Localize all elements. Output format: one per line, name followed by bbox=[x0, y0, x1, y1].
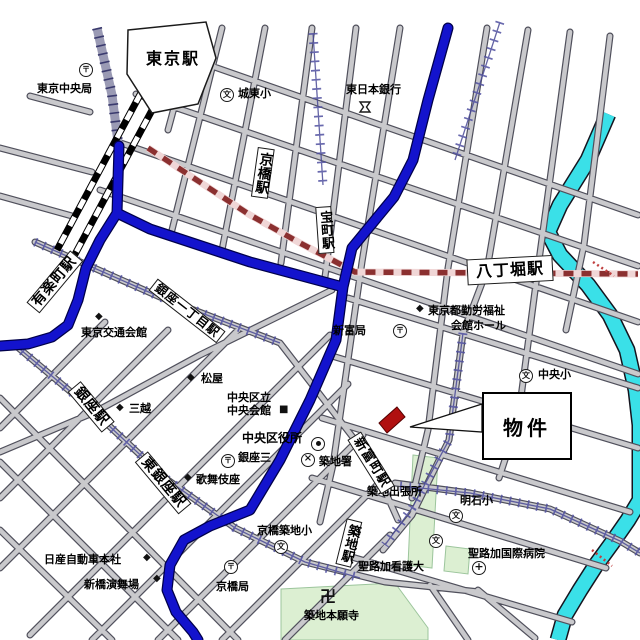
post-office-icon: 〒 bbox=[224, 560, 238, 574]
label-kinro-fukushi-line1: 東京都勤労福祉 bbox=[428, 305, 505, 317]
post-office-icon: 〒 bbox=[393, 324, 407, 338]
label-honganji: 築地本願寺 bbox=[304, 610, 359, 622]
label-chuo-kuritsu: 中央区立 bbox=[227, 392, 271, 404]
label-kabukiza: 歌舞伎座 bbox=[196, 474, 240, 486]
label-st-luke-college: 聖路加看護大 bbox=[358, 561, 424, 573]
diamond-marker: ◆ bbox=[95, 312, 103, 322]
label-chuo-kaikan: 中央会館 bbox=[227, 405, 271, 417]
label-enbujo: 新橋演舞場 bbox=[84, 579, 139, 591]
label-kyobashi-post: 京橋局 bbox=[216, 581, 249, 593]
label-shintomi-post: 新富局 bbox=[333, 325, 366, 337]
label-chuo-ward-office: 中央区役所 bbox=[242, 432, 302, 445]
bank-icon bbox=[358, 100, 372, 114]
tokyo-area-map: 東京駅 有楽町駅 京橋駅 宝町駅 八丁堀駅 銀座一丁目駅 銀座駅 東銀座駅 新富… bbox=[0, 0, 640, 640]
label-tsukiji-branch: 築地出張所 bbox=[367, 486, 422, 498]
label-mitsukoshi: 三越 bbox=[129, 403, 151, 415]
label-akashi-elem: 明石小 bbox=[460, 495, 493, 507]
temple-icon: 卍 bbox=[320, 589, 336, 605]
square-marker: ■ bbox=[279, 405, 288, 415]
label-st-luke-hospital: 聖路加国際病院 bbox=[468, 548, 545, 560]
label-kotsu-kaikan: 東京交通会館 bbox=[81, 327, 147, 339]
government-office-icon bbox=[311, 437, 325, 451]
school-icon: 文 bbox=[220, 88, 234, 102]
station-label-tokyo: 東京駅 bbox=[143, 50, 203, 68]
school-icon: 文 bbox=[519, 369, 533, 383]
label-joto-elem: 城東小 bbox=[238, 88, 271, 100]
hospital-icon: + bbox=[472, 561, 486, 575]
label-tsukiji-police: 築地署 bbox=[319, 456, 352, 468]
property-callout bbox=[410, 404, 482, 432]
label-kinro-fukushi-line2: 会館ホール bbox=[451, 320, 506, 332]
label-kyobashi-tsukiji-elem: 京橋築地小 bbox=[257, 525, 312, 537]
school-icon: 文 bbox=[449, 509, 463, 523]
post-office-icon: 〒 bbox=[79, 63, 93, 77]
diamond-marker: ◆ bbox=[116, 403, 124, 413]
label-chuo-elem: 中央小 bbox=[538, 369, 571, 381]
station-label-takaracho: 宝町駅 bbox=[315, 206, 335, 254]
post-office-icon: 〒 bbox=[221, 454, 235, 468]
label-tokyo-chuo-post: 東京中央局 bbox=[37, 83, 92, 95]
school-icon: 文 bbox=[429, 534, 443, 548]
diamond-marker: ◆ bbox=[153, 574, 161, 584]
property-marker bbox=[379, 407, 405, 433]
diamond-marker: ◆ bbox=[184, 473, 192, 483]
label-nissan-hq: 日産自動車本社 bbox=[44, 554, 121, 566]
label-ginza-san: 銀座三 bbox=[238, 452, 271, 464]
police-station-icon: × bbox=[301, 453, 315, 467]
property-box: 物件 bbox=[482, 392, 572, 460]
school-icon: 文 bbox=[274, 540, 288, 554]
label-matsuya: 松屋 bbox=[201, 373, 223, 385]
diamond-marker: ◆ bbox=[143, 553, 151, 563]
diamond-marker: ◆ bbox=[187, 373, 195, 383]
station-label-hatchobori: 八丁堀駅 bbox=[466, 255, 553, 285]
label-higashi-nippon-bank: 東日本銀行 bbox=[346, 84, 401, 96]
diamond-marker: ◆ bbox=[416, 304, 424, 314]
